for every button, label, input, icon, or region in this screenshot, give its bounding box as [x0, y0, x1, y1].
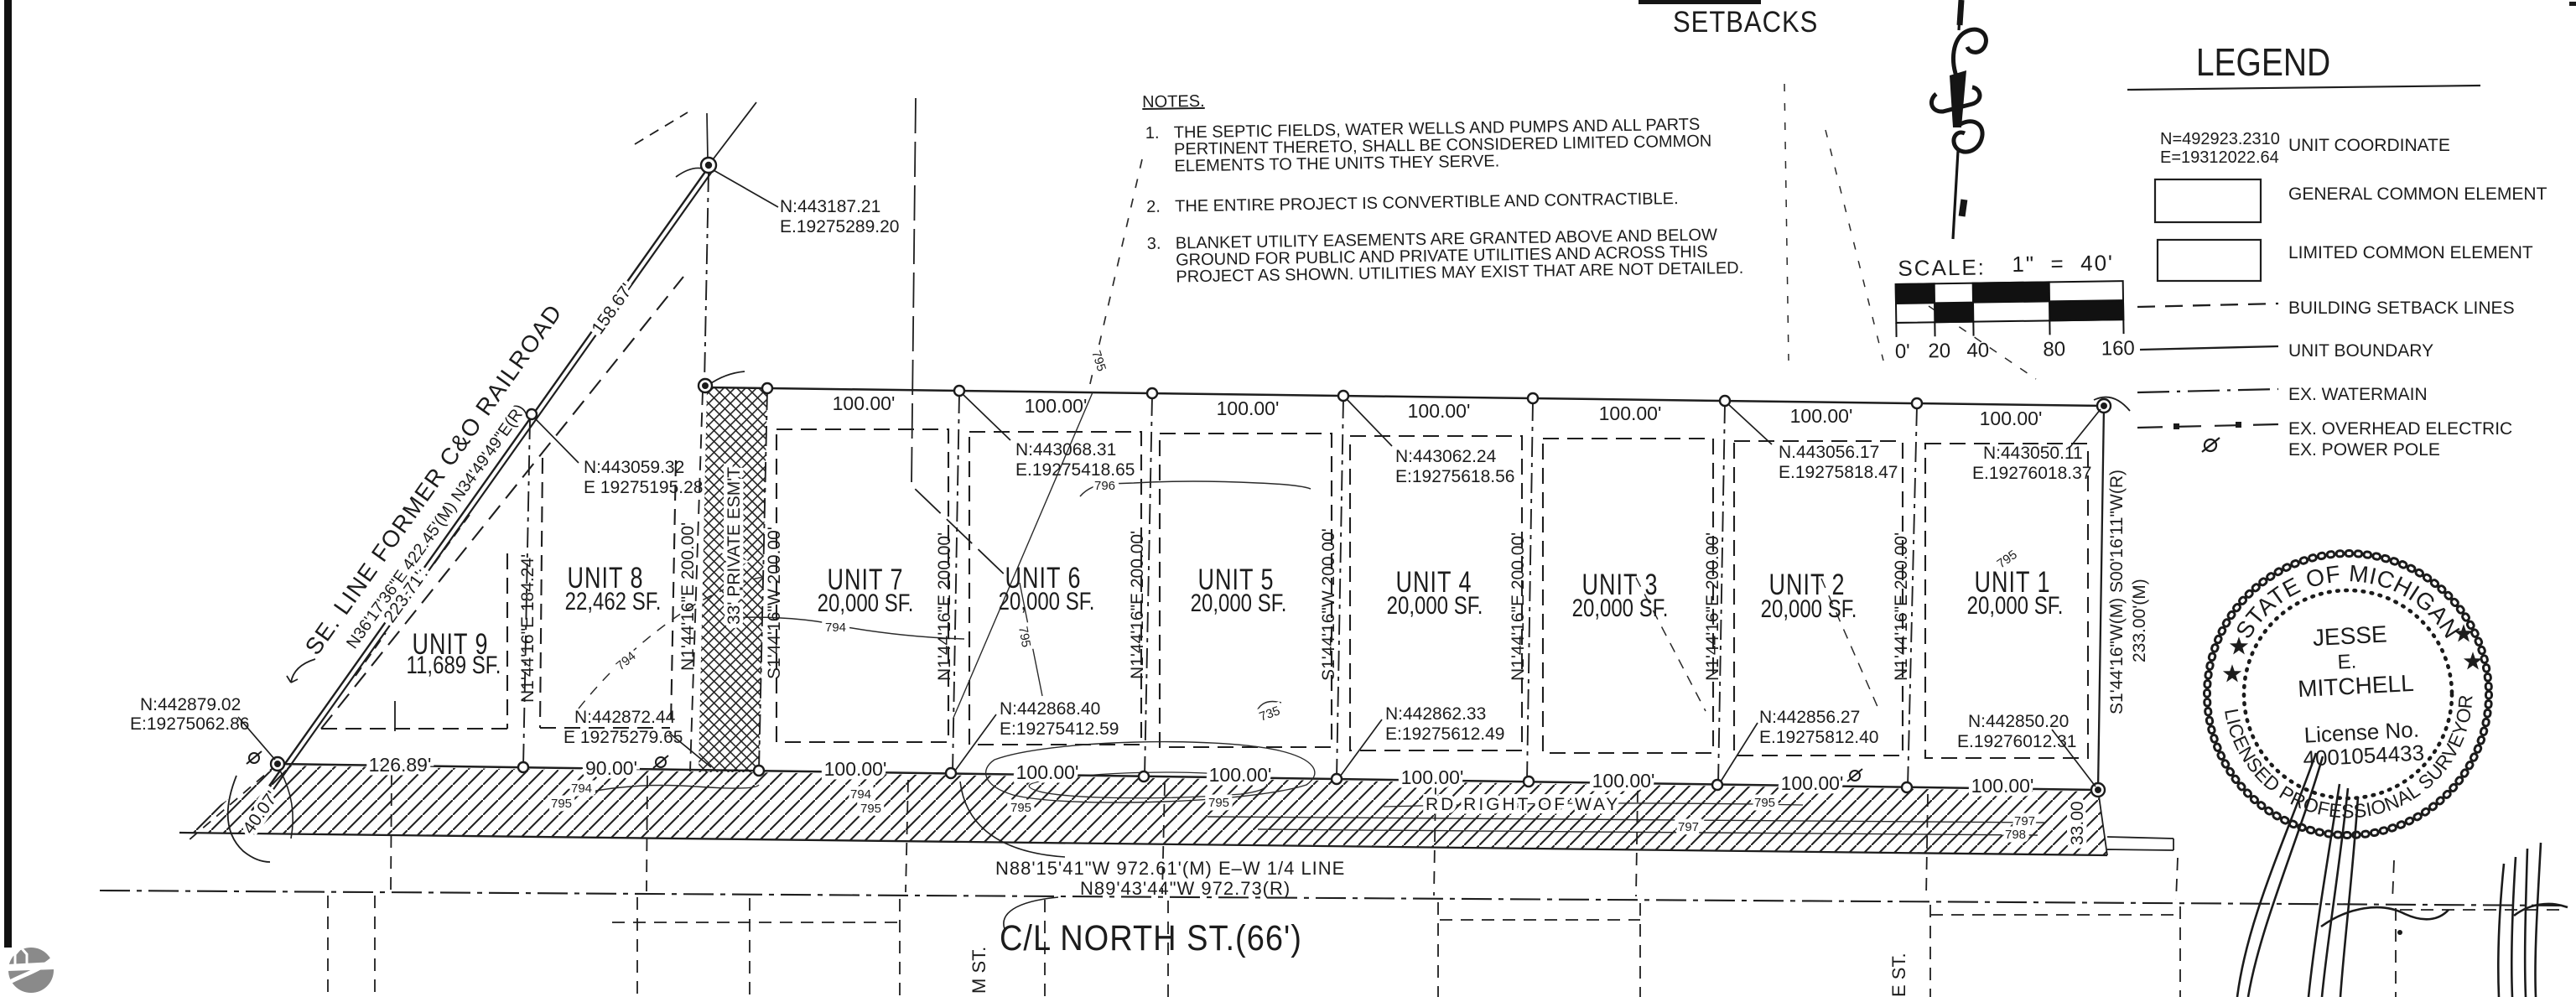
svg-text:SCALE:: SCALE:	[1898, 254, 1986, 280]
svg-text:795: 795	[1754, 796, 1775, 810]
svg-text:N:443068.31: N:443068.31	[1015, 440, 1116, 460]
svg-text:N=492923.2310: N=492923.2310	[2160, 130, 2280, 148]
svg-text:796: 796	[1094, 479, 1115, 493]
svg-text:UNIT BOUNDARY: UNIT BOUNDARY	[2288, 341, 2433, 361]
svg-text:N:443050.11: N:443050.11	[1983, 444, 2083, 463]
svg-text:3.: 3.	[1147, 235, 1161, 253]
svg-text:N1'44'16"E 200.00': N1'44'16"E 200.00'	[1892, 532, 1911, 681]
svg-text:N1'44'16"E 200.00': N1'44'16"E 200.00'	[1509, 532, 1528, 681]
svg-text:E.19276012.31: E.19276012.31	[1957, 732, 2076, 751]
svg-text:E.19275818.47: E.19275818.47	[1779, 463, 1898, 482]
svg-text:N:443062.24: N:443062.24	[1395, 447, 1497, 466]
svg-text:N:442850.20: N:442850.20	[1968, 712, 2069, 731]
svg-text:126.89': 126.89'	[369, 754, 432, 776]
svg-text:N.443056.17: N.443056.17	[1779, 443, 1879, 462]
svg-text:EX. POWER POLE: EX. POWER POLE	[2288, 440, 2440, 460]
svg-text:795: 795	[1208, 796, 1229, 810]
svg-text:22,462 SF.: 22,462 SF.	[565, 588, 662, 615]
svg-text:90.00': 90.00'	[585, 757, 637, 779]
svg-text:1" = 40': 1" = 40'	[2012, 250, 2114, 277]
svg-text:797: 797	[1678, 820, 1699, 834]
svg-text:N1'44'16"E 184.24': N1'44'16"E 184.24'	[518, 554, 538, 703]
svg-text:E.19276018.37: E.19276018.37	[1972, 464, 2091, 483]
svg-text:S1'44'16"W 200.00': S1'44'16"W 200.00'	[765, 527, 784, 679]
svg-text:E.19275289.20: E.19275289.20	[780, 217, 899, 236]
svg-text:40: 40	[1966, 339, 1989, 361]
svg-text:C/L NORTH ST.(66'): C/L NORTH ST.(66')	[1000, 917, 1302, 958]
svg-text:E 19275279.65: E 19275279.65	[563, 728, 683, 747]
svg-text:E.19275418.65: E.19275418.65	[1015, 460, 1135, 480]
svg-text:0': 0'	[1895, 340, 1910, 363]
svg-text:20,000 SF.: 20,000 SF.	[1572, 595, 1669, 622]
svg-text:SETBACKS: SETBACKS	[1673, 6, 1818, 39]
svg-text:E=19312022.64: E=19312022.64	[2160, 148, 2279, 167]
svg-text:798: 798	[2005, 828, 2026, 842]
svg-text:2.: 2.	[1146, 198, 1161, 216]
svg-text:100.00': 100.00'	[1971, 775, 2034, 797]
svg-text:N1'44'16"E 200.00': N1'44'16"E 200.00'	[678, 522, 698, 671]
svg-text:BUILDING SETBACK LINES: BUILDING SETBACK LINES	[2288, 299, 2515, 318]
svg-text:33' PRIVATE ESM'T: 33' PRIVATE ESM'T	[724, 467, 744, 625]
svg-text:100.00': 100.00'	[1217, 397, 1280, 419]
svg-text:20,000 SF.: 20,000 SF.	[1967, 592, 2064, 620]
svg-text:797: 797	[2014, 814, 2035, 828]
svg-text:N88'15'41"W 972.61'(M) E–W: N88'15'41"W 972.61'(M) E–W 1/4 LINE	[995, 858, 1345, 879]
svg-text:100.00': 100.00'	[1209, 764, 1272, 786]
svg-text:E:19275618.56: E:19275618.56	[1395, 467, 1514, 486]
svg-text:20,000 SF.: 20,000 SF.	[1761, 595, 1857, 623]
svg-text:E.19275812.40: E.19275812.40	[1759, 728, 1878, 747]
svg-text:EX. WATERMAIN: EX. WATERMAIN	[2288, 385, 2428, 404]
svg-text:N89'43'44"W 972.73(R): N89'43'44"W 972.73(R)	[1080, 878, 1291, 899]
svg-text:100.00': 100.00'	[833, 392, 896, 414]
svg-text:N:443059.32: N:443059.32	[584, 458, 684, 477]
svg-text:20,000 SF.: 20,000 SF.	[818, 589, 914, 617]
svg-text:N:442868.40: N:442868.40	[1000, 699, 1100, 719]
svg-text:20,000 SF.: 20,000 SF.	[1191, 589, 1287, 617]
svg-text:E:19275612.49: E:19275612.49	[1385, 724, 1504, 744]
svg-text:S1'44'16"W(M) S00'16'11"W(R): S1'44'16"W(M) S00'16'11"W(R)	[2107, 470, 2127, 714]
svg-text:GENERAL COMMON ELEMENT: GENERAL COMMON ELEMENT	[2288, 184, 2547, 204]
svg-text:NOTES.: NOTES.	[1142, 92, 1205, 112]
svg-text:794: 794	[571, 782, 592, 796]
svg-text:100.00': 100.00'	[1781, 772, 1844, 794]
svg-text:UNIT COORDINATE: UNIT COORDINATE	[2288, 136, 2450, 155]
svg-text:E ST.: E ST.	[1888, 953, 1909, 997]
svg-text:20: 20	[1928, 340, 1950, 362]
svg-text:11,689 SF.: 11,689 SF.	[407, 652, 501, 679]
svg-text:794: 794	[850, 787, 871, 802]
svg-text:100.00': 100.00'	[1408, 400, 1471, 422]
svg-text:20,000 SF.: 20,000 SF.	[999, 588, 1095, 615]
svg-text:100.00': 100.00'	[1016, 761, 1079, 783]
svg-text:E:19275412.59: E:19275412.59	[1000, 719, 1119, 739]
svg-text:100.00': 100.00'	[1025, 395, 1088, 417]
svg-text:RD RIGHT OF WAY: RD RIGHT OF WAY	[1426, 795, 1620, 814]
svg-text:M ST.: M ST.	[969, 947, 989, 994]
svg-text:100.00': 100.00'	[1401, 766, 1464, 788]
svg-text:JESSE: JESSE	[2312, 621, 2387, 651]
svg-text:N1'44'16"E 200.00': N1'44'16"E 200.00'	[1703, 532, 1722, 681]
svg-text:LIMITED COMMON ELEMENT: LIMITED COMMON ELEMENT	[2288, 243, 2533, 262]
svg-text:E 19275195.28: E 19275195.28	[584, 478, 703, 497]
svg-text:100.00': 100.00'	[824, 758, 887, 780]
svg-text:20,000 SF.: 20,000 SF.	[1387, 592, 1483, 620]
svg-text:N1'44'16"E 200.00': N1'44'16"E 200.00'	[935, 532, 954, 681]
svg-text:1.: 1.	[1145, 124, 1160, 143]
svg-text:100.00': 100.00'	[1790, 405, 1853, 427]
svg-text:E.: E.	[2337, 650, 2357, 673]
svg-text:E:19275062.86: E:19275062.86	[130, 714, 249, 734]
svg-text:N:442872.44: N:442872.44	[574, 708, 676, 727]
svg-text:100.00': 100.00'	[1980, 408, 2043, 429]
svg-text:N:442862.33: N:442862.33	[1385, 704, 1486, 724]
svg-text:160: 160	[2101, 337, 2135, 361]
svg-text:S1'44'16"W 200.00': S1'44'16"W 200.00'	[1319, 528, 1338, 681]
svg-text:N:442879.02: N:442879.02	[140, 695, 241, 714]
svg-text:795: 795	[1010, 801, 1031, 815]
svg-text:795: 795	[551, 797, 572, 811]
svg-text:LEGEND: LEGEND	[2196, 41, 2330, 85]
svg-text:80: 80	[2043, 338, 2065, 361]
svg-text:795: 795	[860, 802, 881, 816]
svg-text:233.00'(M): 233.00'(M)	[2130, 579, 2149, 662]
svg-text:33.00: 33.00	[2068, 801, 2087, 845]
svg-text:N:443187.21: N:443187.21	[780, 197, 880, 216]
svg-text:EX. OVERHEAD ELECTRIC: EX. OVERHEAD ELECTRIC	[2288, 419, 2512, 439]
svg-text:N1'44'16"E 200.00': N1'44'16"E 200.00'	[1128, 531, 1147, 679]
svg-text:100.00': 100.00'	[1592, 770, 1655, 792]
svg-text:794: 794	[825, 621, 846, 635]
svg-text:N:442856.27: N:442856.27	[1759, 708, 1860, 727]
svg-text:100.00': 100.00'	[1599, 402, 1662, 424]
